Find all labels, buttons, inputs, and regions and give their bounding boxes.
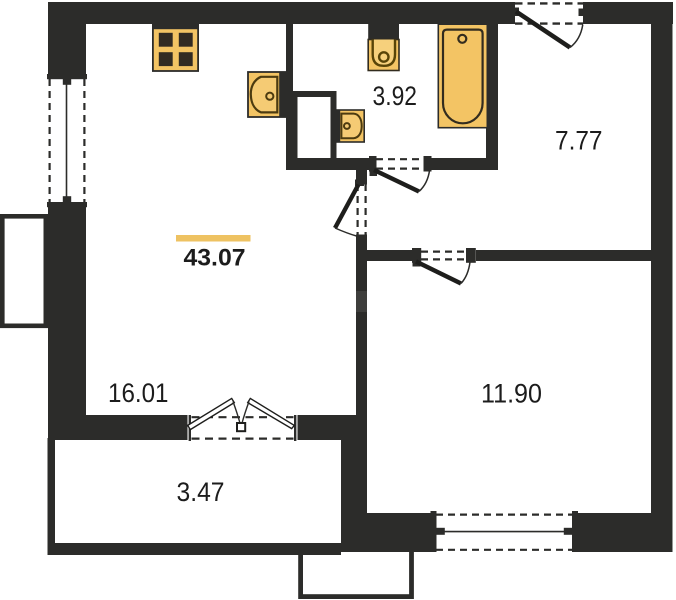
svg-text:3.92: 3.92 bbox=[373, 81, 418, 111]
svg-text:16.01: 16.01 bbox=[108, 378, 169, 408]
svg-text:43.07: 43.07 bbox=[184, 245, 246, 272]
svg-text:7.77: 7.77 bbox=[555, 126, 603, 156]
svg-text:3.47: 3.47 bbox=[177, 477, 225, 507]
svg-text:11.90: 11.90 bbox=[481, 379, 542, 409]
